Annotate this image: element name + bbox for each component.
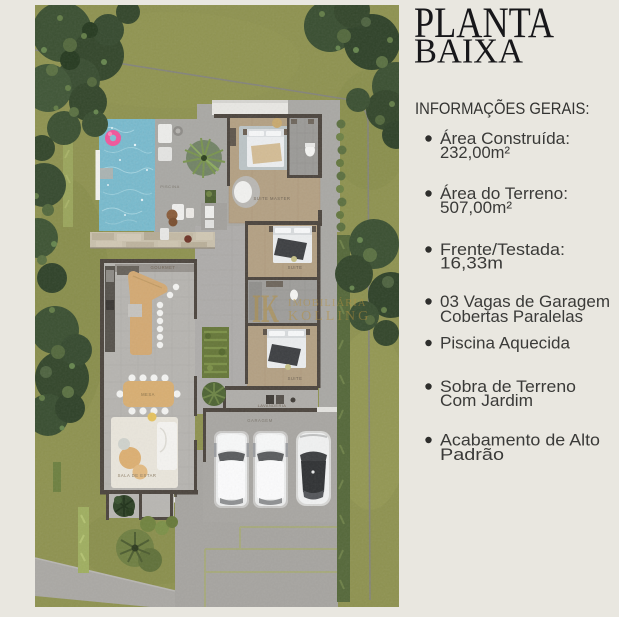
svg-text:IK: IK (252, 286, 279, 331)
svg-text:Piscina Aquecida: Piscina Aquecida (440, 334, 571, 353)
svg-text:232,00m²: 232,00m² (440, 143, 510, 162)
svg-text:16,33m: 16,33m (440, 254, 503, 273)
svg-text:Cobertas Paralelas: Cobertas Paralelas (440, 307, 583, 326)
svg-text:INFORMAÇÕES GERAIS:: INFORMAÇÕES GERAIS: (415, 99, 590, 118)
svg-text:Padrão: Padrão (440, 445, 504, 464)
svg-text:Com Jardim: Com Jardim (440, 391, 533, 410)
svg-text:507,00m²: 507,00m² (440, 198, 512, 217)
svg-text:KOLLING: KOLLING (288, 309, 371, 324)
svg-text:IMOBILIÁRIA: IMOBILIÁRIA (288, 297, 367, 309)
svg-text:BAIXA: BAIXA (414, 32, 524, 71)
